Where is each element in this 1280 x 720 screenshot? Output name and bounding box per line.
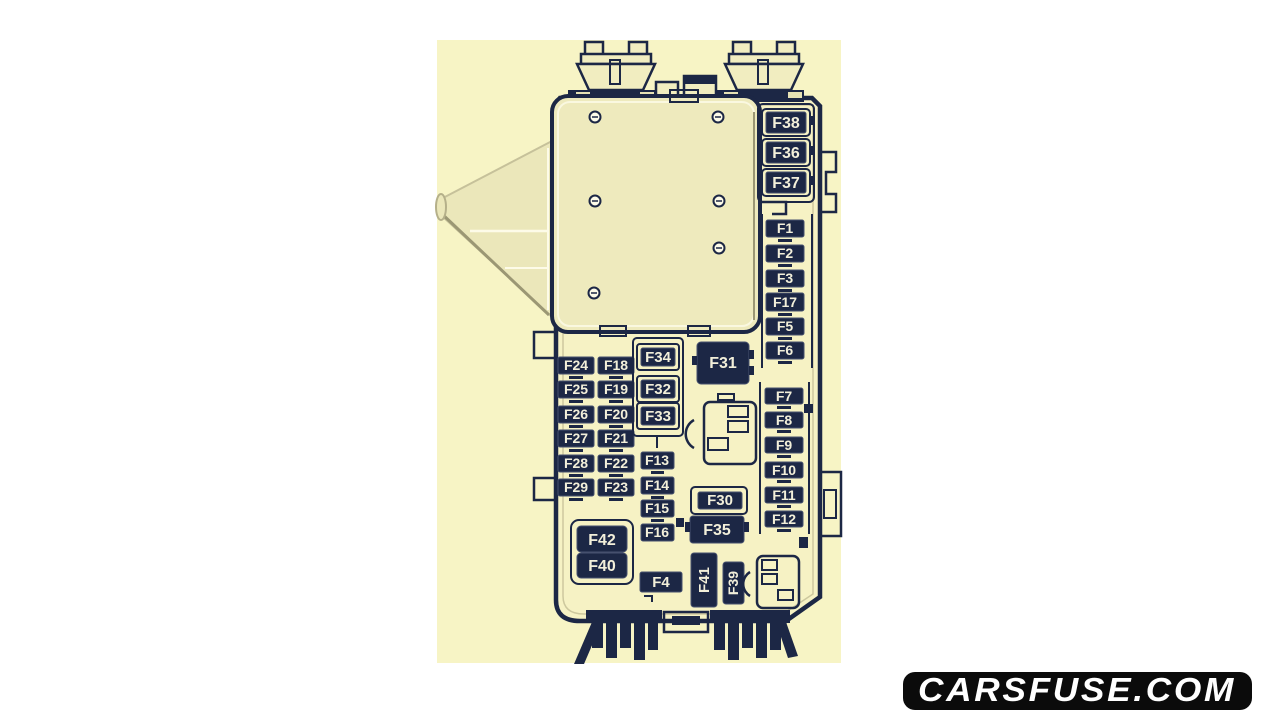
svg-text:F28: F28 [564, 455, 588, 471]
svg-text:F15: F15 [645, 500, 669, 516]
svg-text:F9: F9 [776, 437, 793, 453]
relay-f35: F35 [685, 516, 749, 543]
fuse-f33: F33 [641, 407, 675, 425]
svg-text:F31: F31 [709, 355, 737, 372]
svg-text:F29: F29 [564, 479, 588, 495]
svg-text:F16: F16 [645, 524, 669, 540]
svg-text:F6: F6 [777, 342, 794, 358]
svg-text:F1: F1 [777, 220, 794, 236]
svg-text:F12: F12 [772, 511, 796, 527]
page: F38 F36 F37 F1 F2 F3 [0, 0, 1280, 720]
svg-text:F2: F2 [777, 245, 794, 261]
svg-text:F34: F34 [645, 349, 672, 366]
svg-text:F35: F35 [703, 522, 731, 539]
svg-text:F24: F24 [564, 357, 588, 373]
relay-block-f42-f40: F42 F40 [571, 520, 633, 584]
fuse-f36: F36 [766, 142, 806, 163]
svg-text:F17: F17 [773, 294, 797, 310]
fuse-f32: F32 [641, 380, 675, 398]
svg-text:F36: F36 [772, 145, 800, 162]
relay-cover [552, 90, 760, 336]
svg-text:F32: F32 [645, 381, 671, 398]
svg-text:F42: F42 [588, 532, 616, 549]
fuse-f38: F38 [766, 112, 806, 133]
svg-text:F26: F26 [564, 406, 588, 422]
svg-text:F38: F38 [772, 115, 800, 132]
watermark-text: CARSFUSE.COM [918, 671, 1236, 708]
svg-text:F14: F14 [645, 477, 669, 493]
svg-text:F22: F22 [604, 455, 628, 471]
svg-text:F13: F13 [645, 452, 669, 468]
svg-text:F3: F3 [777, 270, 794, 286]
svg-text:F7: F7 [776, 388, 793, 404]
watermark-badge: CARSFUSE.COM [903, 671, 1252, 710]
svg-text:F21: F21 [604, 430, 628, 446]
svg-text:F27: F27 [564, 430, 588, 446]
svg-text:F11: F11 [772, 487, 796, 503]
top-latch-large-cap [684, 76, 716, 84]
svg-text:F18: F18 [604, 357, 628, 373]
relay-f31: F31 [692, 342, 754, 384]
svg-text:F37: F37 [772, 175, 800, 192]
relay-f42: F42 [577, 526, 627, 552]
svg-text:F23: F23 [604, 479, 628, 495]
fuse-box-diagram-image: F38 F36 F37 F1 F2 F3 [0, 0, 1280, 720]
svg-text:F19: F19 [604, 381, 628, 397]
fuse-f37: F37 [766, 172, 806, 193]
fuse-f34: F34 [641, 348, 675, 366]
svg-text:F30: F30 [707, 492, 733, 509]
svg-text:F41: F41 [696, 567, 713, 593]
svg-text:F39: F39 [725, 571, 741, 595]
svg-text:F5: F5 [777, 318, 794, 334]
svg-text:F4: F4 [652, 574, 670, 591]
relay-f40: F40 [577, 553, 627, 578]
svg-text:F33: F33 [645, 408, 671, 425]
svg-text:F40: F40 [588, 558, 616, 575]
svg-text:F25: F25 [564, 381, 588, 397]
svg-text:F10: F10 [772, 462, 796, 478]
relay-f39: F39 [723, 562, 744, 604]
relay-f41: F41 [691, 553, 717, 607]
svg-text:F8: F8 [776, 412, 793, 428]
svg-text:F20: F20 [604, 406, 628, 422]
